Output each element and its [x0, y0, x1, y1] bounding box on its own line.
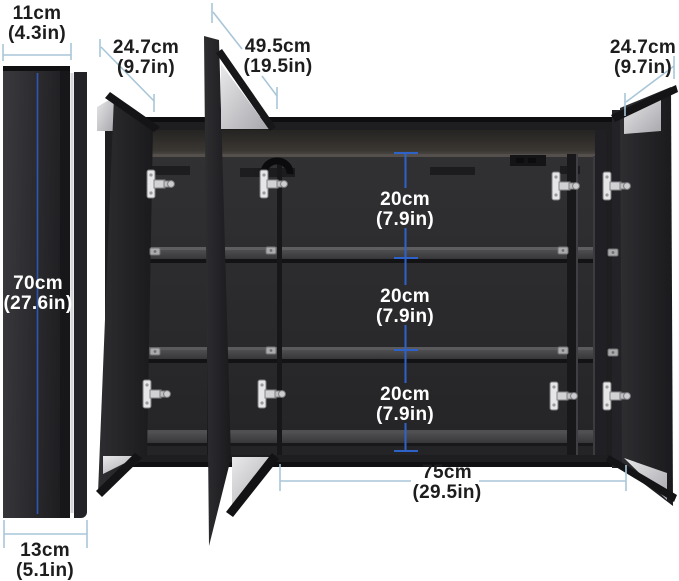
cabinet-diagram-art: [0, 0, 679, 581]
dimension-label-height: 70cm (27.6in): [0, 274, 83, 314]
dimension-value-inch: (9.7in): [81, 58, 211, 78]
dimension-value-inch: (7.9in): [345, 307, 465, 327]
dimension-value-cm: 24.7cm: [81, 38, 211, 58]
dimension-label-width: 75cm (29.5in): [377, 463, 517, 503]
dimension-label-shelf-gap-bottom: 20cm (7.9in): [345, 385, 465, 425]
dimension-label-shelf-gap-top: 20cm (7.9in): [345, 190, 465, 230]
dimension-value-cm: 24.7cm: [583, 38, 679, 58]
shelf-upper: [117, 247, 606, 263]
dimension-value-inch: (9.7in): [583, 58, 679, 78]
dimension-value-cm: 75cm: [377, 463, 517, 483]
dimension-value-inch: (7.9in): [345, 210, 465, 230]
dimension-value-inch: (27.6in): [0, 294, 83, 314]
dimension-value-inch: (29.5in): [377, 483, 517, 503]
shelf-pin-icon: [558, 247, 568, 254]
dimension-value-cm: 11cm: [0, 4, 82, 24]
dimension-label-depth: 13cm (5.1in): [0, 541, 100, 581]
shelf-pin-icon: [608, 249, 618, 256]
shelf-pin-icon: [266, 347, 276, 354]
dimension-value-cm: 20cm: [345, 287, 465, 307]
dimension-value-inch: (4.3in): [0, 24, 82, 44]
dimension-label-side-width: 11cm (4.3in): [0, 4, 82, 44]
shelf-pin-icon: [150, 248, 160, 255]
dimension-label-left-door: 24.7cm (9.7in): [81, 38, 211, 78]
right-door-open: [606, 85, 678, 506]
right-door-panel: [620, 87, 673, 506]
shelf-pin-icon: [608, 349, 618, 356]
dimension-label-right-door: 24.7cm (9.7in): [583, 38, 679, 78]
cabinet-floor: [117, 430, 606, 446]
dimension-label-middle-door: 49.5cm (19.5in): [208, 37, 348, 77]
dimension-label-shelf-gap-middle: 20cm (7.9in): [345, 287, 465, 327]
shelf-lower: [117, 347, 606, 363]
dimension-value-inch: (7.9in): [345, 405, 465, 425]
divider-right: [567, 154, 578, 455]
dimension-value-cm: 13cm: [0, 541, 100, 561]
shelf-pin-icon: [150, 348, 160, 355]
shelf-pin-icon: [558, 347, 568, 354]
dimension-value-cm: 20cm: [345, 385, 465, 405]
dimension-value-cm: 20cm: [345, 190, 465, 210]
dimension-value-inch: (19.5in): [208, 57, 348, 77]
dimension-value-inch: (5.1in): [0, 561, 100, 581]
shelf-pin-icon: [266, 247, 276, 254]
dimension-value-cm: 70cm: [0, 274, 83, 294]
dimension-value-cm: 49.5cm: [208, 37, 348, 57]
diagram-canvas: 11cm (4.3in) 24.7cm (9.7in) 49.5cm (19.5…: [0, 0, 679, 581]
